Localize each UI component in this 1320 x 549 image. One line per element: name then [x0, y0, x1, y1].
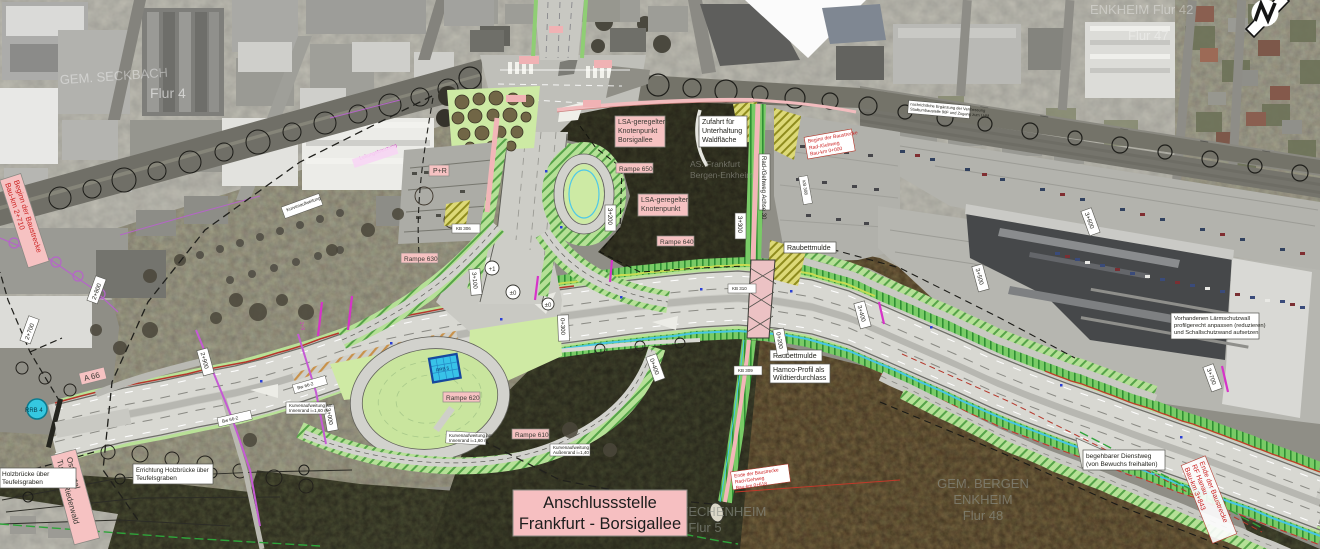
svg-text:±0: ±0 — [545, 303, 552, 309]
svg-text:Flur 5: Flur 5 — [688, 520, 721, 535]
svg-text:KB 309: KB 309 — [738, 368, 753, 373]
svg-text:Rampe 630: Rampe 630 — [404, 256, 438, 263]
svg-text:3+300: 3+300 — [736, 216, 742, 234]
svg-text:Knotenpunkt: Knotenpunkt — [641, 206, 680, 213]
svg-text:RRB 4: RRB 4 — [25, 408, 43, 414]
svg-text:Hamco-Profil als: Hamco-Profil als — [773, 367, 825, 374]
svg-text:KB 306: KB 306 — [456, 226, 471, 231]
svg-text:Rampe 610: Rampe 610 — [515, 432, 549, 439]
svg-text:Innenrand i=1,60 m: Innenrand i=1,60 m — [449, 438, 488, 443]
svg-text:Zufahrt für: Zufahrt für — [702, 119, 735, 126]
svg-text:LSA-geregelter: LSA-geregelter — [618, 119, 666, 126]
svg-text:Außenrand i=1,40 m: Außenrand i=1,40 m — [553, 450, 594, 455]
svg-text:Wildtierdurchlass: Wildtierdurchlass — [773, 375, 827, 382]
svg-text:Raubettmulde: Raubettmulde — [787, 245, 831, 252]
svg-text:(von Bewuchs freihalten): (von Bewuchs freihalten) — [1086, 461, 1158, 468]
svg-text:Rampe 640: Rampe 640 — [660, 239, 694, 246]
svg-text:Flur 47: Flur 47 — [1128, 28, 1168, 43]
svg-text:und Schallschutzwand aufsetzen: und Schallschutzwand aufsetzen — [1174, 330, 1258, 336]
svg-text:begehbarer Dienstweg: begehbarer Dienstweg — [1086, 453, 1152, 460]
svg-text:Bergen-Enkheim: Bergen-Enkheim — [690, 170, 753, 180]
svg-text:Rampe 650: Rampe 650 — [619, 166, 653, 173]
svg-text:KB 310: KB 310 — [732, 286, 747, 291]
svg-text:P+R: P+R — [433, 168, 447, 175]
svg-text:0+300: 0+300 — [559, 318, 566, 336]
svg-text:profilgerecht anpassen (reduzi: profilgerecht anpassen (reduzieren) — [1174, 323, 1266, 329]
svg-text:AS. Frankfurt: AS. Frankfurt — [690, 159, 741, 169]
svg-text:Vorhandenen Lärmschutzwall: Vorhandenen Lärmschutzwall — [1174, 316, 1250, 322]
svg-text:Teufelsgraben: Teufelsgraben — [2, 479, 43, 486]
svg-text:Flur 4: Flur 4 — [150, 85, 186, 101]
svg-text:Holzbrücke über: Holzbrücke über — [2, 471, 50, 478]
svg-text:Innenrand i=1,60 m: Innenrand i=1,60 m — [289, 408, 328, 413]
svg-text:GEM. BERGEN: GEM. BERGEN — [937, 476, 1029, 491]
svg-text:Anschlussstelle: Anschlussstelle — [543, 494, 657, 512]
svg-text:ENKHEIM Flur 42: ENKHEIM Flur 42 — [1090, 2, 1193, 17]
svg-text:Knotenpunkt: Knotenpunkt — [618, 128, 657, 135]
svg-text:+1: +1 — [489, 267, 497, 273]
svg-text:Errichtung Holzbrücke über: Errichtung Holzbrücke über — [136, 468, 209, 474]
svg-text:Waldfläche: Waldfläche — [702, 137, 736, 144]
svg-text:Frankfurt - Borsigallee: Frankfurt - Borsigallee — [519, 515, 681, 533]
svg-text:LSA-geregelter: LSA-geregelter — [641, 197, 689, 204]
svg-text:Teufelsgraben: Teufelsgraben — [136, 475, 177, 482]
svg-text:Flur 48: Flur 48 — [963, 508, 1003, 523]
svg-text:Borsigallee: Borsigallee — [618, 137, 653, 144]
svg-text:3+200: 3+200 — [606, 208, 612, 226]
svg-text:Unterhaltung: Unterhaltung — [702, 128, 742, 135]
svg-text:±0: ±0 — [510, 291, 517, 297]
svg-text:Rad-/Gehweg Achse 30: Rad-/Gehweg Achse 30 — [760, 156, 766, 220]
svg-text:ENKHEIM: ENKHEIM — [953, 492, 1012, 507]
svg-text:Rampe 620: Rampe 620 — [446, 395, 480, 402]
